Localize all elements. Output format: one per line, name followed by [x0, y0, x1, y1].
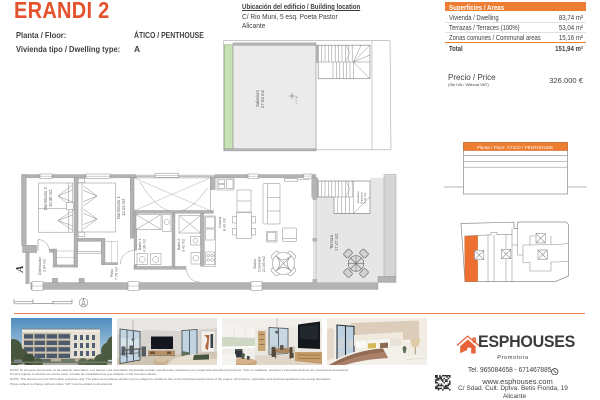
svg-text:A: A [15, 265, 26, 273]
svg-text:SalónComedor21.06 m2: SalónComedor21.06 m2 [253, 256, 266, 272]
svg-text:Baño 23.42 m2: Baño 23.42 m2 [177, 239, 185, 252]
svg-text:Distribuidor1.64 m2: Distribuidor1.64 m2 [38, 256, 46, 275]
svg-text:Terraza17.47 m2: Terraza17.47 m2 [329, 233, 339, 251]
svg-text:Baño 14.36 m2: Baño 14.36 m2 [138, 239, 146, 252]
svg-text:Paso7.79 m2: Paso7.79 m2 [110, 267, 118, 280]
svg-text:Planta / Floor: ÁTICO / PENTHO: Planta / Floor: ÁTICO / PENTHOUSE [477, 144, 553, 150]
